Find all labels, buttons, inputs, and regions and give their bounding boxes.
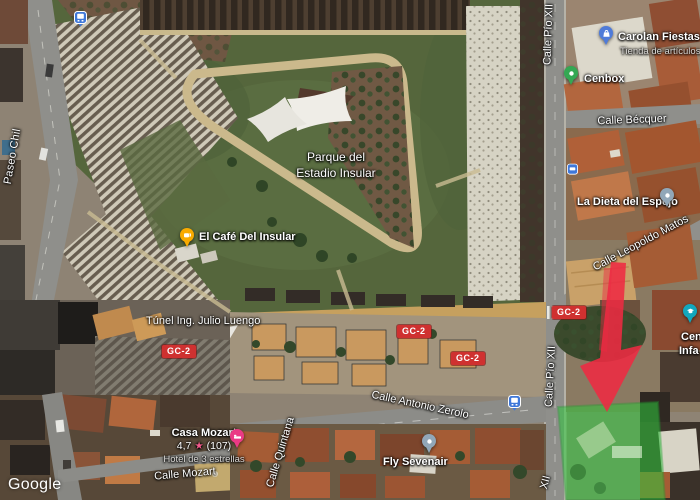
- poi-label-cenbox[interactable]: Cenbox: [584, 73, 624, 86]
- street-label-antonio-zerolo: Calle Antonio Zerolo: [368, 388, 472, 422]
- coffee-cup-icon: [183, 231, 192, 240]
- bottom-right-blocks: [640, 422, 700, 500]
- east-stands: [466, 0, 546, 302]
- road-badge-gc2-mid2: GC-2: [451, 352, 485, 365]
- plaza-stalls: [214, 288, 546, 397]
- poi-label-carolan-fiestas[interactable]: Carolan Fiestas: [618, 31, 700, 44]
- street-label-tunel: Túnel Ing. Julio Luengo: [146, 315, 260, 328]
- highlighted-building-overlay: [558, 402, 665, 500]
- bus-stop-icon[interactable]: [508, 395, 521, 416]
- generic-pin-icon[interactable]: [660, 188, 675, 209]
- road-badge-gc2-east: GC-2: [552, 306, 586, 319]
- park-label-line1: Parque del: [276, 149, 396, 165]
- shopping-pin-icon[interactable]: [599, 26, 614, 47]
- stadium-roof-strip: [140, 0, 470, 30]
- park-label[interactable]: Parque del Estadio Insular: [276, 149, 396, 181]
- bed-icon: [233, 432, 242, 441]
- graduation-cap-icon: [686, 307, 695, 316]
- bus-stop-icon[interactable]: [74, 11, 87, 32]
- paseo-chil-road: [0, 0, 78, 432]
- dot-icon: [425, 437, 434, 446]
- stadium-roof-edge: [140, 30, 470, 35]
- calle-leopoldo-matos-road: [558, 220, 700, 318]
- street-label-leopoldo-matos: Calle Leopoldo Matos: [589, 211, 694, 275]
- street-label-calle-quintana: Calle Quintana: [264, 414, 299, 490]
- calle-antonio-zerolo-road: [55, 396, 546, 472]
- northeast-district: [564, 0, 700, 118]
- google-logo: Google: [8, 476, 61, 494]
- bus-stop-icon[interactable]: [567, 164, 578, 182]
- dot-icon: [663, 191, 672, 200]
- poi-label-partial-line2[interactable]: Infa: [679, 345, 699, 358]
- red-arrow-annotation: [580, 262, 642, 412]
- park-label-line2: Estadio Insular: [276, 165, 396, 181]
- hotel-pin-icon[interactable]: [230, 429, 245, 450]
- street-label-pio-xii-partial: XII: [536, 466, 556, 498]
- tent-canopies: [247, 86, 354, 142]
- street-label-calle-becquer: Calle Bécquer: [587, 112, 677, 128]
- road-badge-gc2-mid1: GC-2: [397, 325, 431, 338]
- dot-icon: [567, 69, 576, 78]
- road-badge-gc2-west: GC-2: [162, 345, 196, 358]
- education-pin-icon[interactable]: [683, 304, 698, 325]
- stands-terraces: [36, 0, 240, 332]
- street-label-paseo-chil: Paseo Chil: [1, 121, 26, 192]
- red-arrow-stroke: [599, 268, 612, 352]
- poi-label-cafe-insular[interactable]: El Café Del Insular: [199, 231, 296, 244]
- cafe-pin-icon[interactable]: [180, 228, 195, 249]
- poi-label-partial-line1[interactable]: Cen: [681, 331, 700, 344]
- street-label-pio-xii-south: Calle Pío XII: [543, 341, 560, 412]
- street-label-pio-xii-north: Calle Pío XII: [541, 0, 556, 70]
- generic-pin-icon[interactable]: [422, 434, 437, 455]
- street-label-calle-mozart: Calle Mozart: [140, 464, 231, 485]
- satellite-map[interactable]: Paseo Chil Calle Pío XII Calle Pío XII X…: [0, 0, 700, 500]
- poi-subtitle-casa-mozart: Hotel de 3 estrellas: [154, 453, 254, 466]
- poi-subtitle-carolan-fiestas: Tienda de artículos de fie: [620, 45, 700, 58]
- rating-star-icon: ★: [194, 440, 203, 452]
- cenbox-pin-icon[interactable]: [564, 66, 579, 87]
- shopping-bag-icon: [602, 29, 611, 38]
- poi-label-fly-sevenair[interactable]: Fly Sevenair: [383, 456, 448, 469]
